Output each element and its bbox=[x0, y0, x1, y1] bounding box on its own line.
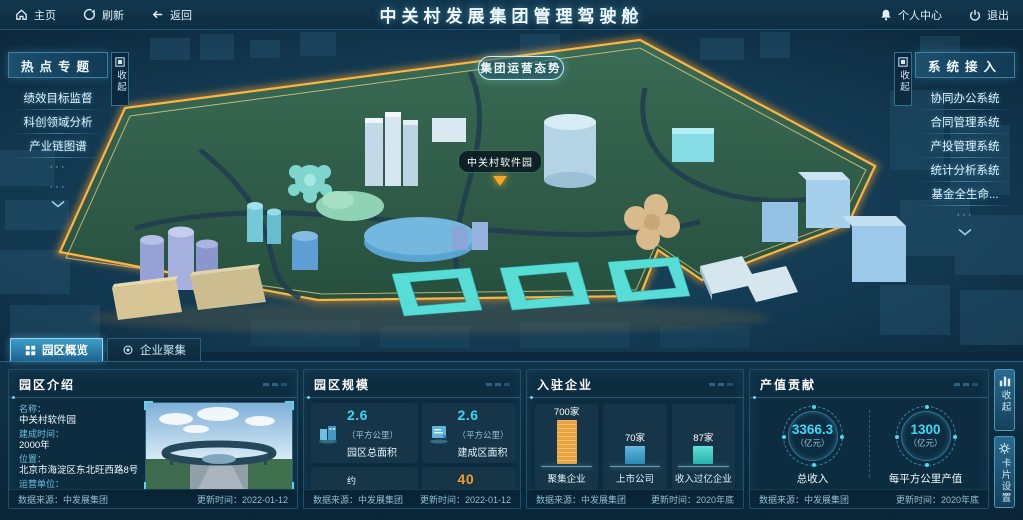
gauge-ring: 3366.3 （亿元） bbox=[783, 406, 843, 466]
hot-topics-collapse-button[interactable]: 收起 bbox=[111, 52, 129, 106]
corner-bracket bbox=[285, 401, 294, 410]
hot-topic-item[interactable]: 产业链图谱 bbox=[8, 134, 108, 158]
gauge-value: 1300 bbox=[910, 422, 940, 437]
collapse-cards-button[interactable]: 收起 bbox=[994, 369, 1015, 431]
corner-bracket bbox=[144, 482, 153, 490]
gauge-dot bbox=[953, 435, 957, 439]
field-label: 建成时间： bbox=[19, 429, 137, 440]
data-source: 数据来源：中发展集团 bbox=[536, 493, 626, 506]
field-value: 2000年 bbox=[19, 440, 137, 451]
bar-category-label: 聚集企业 bbox=[548, 471, 586, 485]
gauge-dot bbox=[895, 435, 899, 439]
collapse-label: 收起 bbox=[896, 70, 910, 93]
buildings-icon bbox=[317, 421, 341, 445]
more-items-indicator[interactable]: ··· bbox=[8, 178, 108, 198]
refresh-label: 刷新 bbox=[102, 7, 124, 23]
panel-enterprises: 入驻企业 700家 聚集企业 70家 上市公司 bbox=[526, 369, 744, 509]
enterprise-bar-chart: 700家 聚集企业 70家 上市公司 87家 bbox=[527, 398, 743, 489]
gauge-dot bbox=[925, 405, 929, 409]
grid-icon bbox=[25, 345, 36, 356]
system-item[interactable]: 协同办公系统 bbox=[915, 86, 1015, 110]
gauge-dot bbox=[925, 463, 929, 467]
chevron-down-icon[interactable] bbox=[50, 200, 66, 208]
collapse-label: 收起 bbox=[113, 70, 127, 93]
scene: 集团运营态势 中关村软件园 热点专题 收起 绩效目标监督 科创领域分析 产业链图… bbox=[0, 30, 1023, 352]
back-label: 返回 bbox=[170, 7, 192, 23]
system-access-collapse-button[interactable]: 收起 bbox=[894, 52, 912, 106]
card-settings-label: 卡片设置 bbox=[998, 458, 1012, 504]
stat-prefix: 约 bbox=[347, 476, 356, 486]
bar-column: 70家 上市公司 bbox=[603, 404, 666, 489]
personal-center-button[interactable]: 个人中心 bbox=[879, 7, 942, 23]
gauge-name: 每平方公里产值 bbox=[889, 471, 963, 486]
panel-park-intro: 园区介绍 名称：中关村软件园 建成时间：2000年 位置：北京市海淀区东北旺西路… bbox=[8, 369, 298, 509]
panel-title: 入驻企业 bbox=[537, 376, 593, 393]
dashboard-app: 中关村发展集团管理驾驶舱 主页 刷新 返回 个人中心 退出 bbox=[0, 0, 1023, 520]
tab-label: 企业聚集 bbox=[140, 342, 186, 358]
collapse-icon bbox=[898, 57, 908, 67]
system-item[interactable]: 统计分析系统 bbox=[915, 158, 1015, 182]
header-decoration bbox=[709, 383, 733, 386]
data-source: 数据来源：中发展集团 bbox=[18, 493, 108, 506]
home-label: 主页 bbox=[34, 7, 56, 23]
cards-row: 园区介绍 名称：中关村软件园 建成时间：2000年 位置：北京市海淀区东北旺西路… bbox=[0, 361, 1023, 520]
gauge-dot bbox=[840, 435, 844, 439]
target-icon bbox=[122, 344, 134, 356]
card-side-buttons: 收起 卡片设置 bbox=[994, 369, 1015, 520]
home-icon bbox=[14, 7, 29, 22]
field-label: 名称： bbox=[19, 404, 137, 415]
panel-title: 园区介绍 bbox=[19, 376, 75, 393]
system-item[interactable]: 合同管理系统 bbox=[915, 110, 1015, 134]
field-value: 中关村软件园 bbox=[19, 415, 137, 426]
bar-value-label: 700家 bbox=[554, 404, 579, 418]
update-time: 更新时间：2020年底 bbox=[896, 493, 979, 506]
map-marker[interactable]: 中关村软件园 bbox=[452, 150, 548, 186]
field-label: 运营单位： bbox=[19, 479, 137, 489]
bar-column: 700家 聚集企业 bbox=[535, 404, 598, 489]
map-pin-icon bbox=[493, 176, 507, 186]
home-button[interactable]: 主页 bbox=[14, 7, 56, 23]
park-photo-image bbox=[146, 403, 292, 489]
system-item[interactable]: 基金全生命... bbox=[915, 182, 1015, 206]
bar-over-100m-revenue bbox=[693, 446, 713, 464]
gauge-dot bbox=[812, 463, 816, 467]
gauge-total-revenue: 3366.3 （亿元） 总收入 bbox=[756, 406, 869, 486]
data-source: 数据来源：中发展集团 bbox=[759, 493, 849, 506]
gauge-value: 3366.3 bbox=[792, 422, 833, 437]
field-label: 位置： bbox=[19, 454, 137, 465]
stat-built-area: 2.6 （平方公里）建成区面积 bbox=[422, 403, 515, 463]
stat-name: 园区总面积 bbox=[347, 444, 412, 459]
topbar: 中关村发展集团管理驾驶舱 主页 刷新 返回 个人中心 退出 bbox=[0, 0, 1023, 30]
group-operation-label: 集团运营态势 bbox=[481, 60, 562, 76]
collapse-icon bbox=[115, 57, 125, 67]
update-time: 更新时间：2022-01-12 bbox=[420, 493, 511, 506]
panel-title: 园区规模 bbox=[314, 376, 370, 393]
stat-carrier-area: 约310(万平方米)载体面积 bbox=[311, 467, 418, 489]
bar-baseline bbox=[610, 466, 661, 467]
bar-baseline bbox=[541, 466, 592, 467]
panel-title: 产值贡献 bbox=[760, 376, 816, 393]
gauge-output-per-sqkm: 1300 （亿元） 每平方公里产值 bbox=[869, 406, 982, 486]
update-time: 更新时间：2022-01-12 bbox=[197, 493, 288, 506]
document-icon bbox=[428, 421, 452, 445]
bar-baseline bbox=[678, 466, 729, 467]
park-photo bbox=[145, 402, 293, 490]
system-item[interactable]: 产投管理系统 bbox=[915, 134, 1015, 158]
header-decoration bbox=[954, 383, 978, 386]
data-source: 数据来源：中发展集团 bbox=[313, 493, 403, 506]
exit-label: 退出 bbox=[987, 7, 1009, 23]
bar-listed-companies bbox=[625, 446, 645, 464]
header-decoration bbox=[263, 383, 287, 386]
stat-name: 建成区面积 bbox=[458, 444, 509, 459]
corner-bracket bbox=[285, 482, 294, 490]
back-arrow-icon bbox=[150, 7, 165, 22]
chevron-down-icon[interactable] bbox=[957, 228, 973, 236]
bell-icon bbox=[879, 8, 893, 22]
bar-column: 87家 收入过亿企业 bbox=[672, 404, 735, 489]
hot-topic-item[interactable]: 科创领域分析 bbox=[8, 110, 108, 134]
corner-bracket bbox=[144, 401, 153, 410]
stat-value: 2.6 bbox=[347, 407, 368, 423]
system-access-panel: 系统接入 收起 协同办公系统 合同管理系统 产投管理系统 统计分析系统 基金全生… bbox=[915, 52, 1015, 236]
exit-button[interactable]: 退出 bbox=[968, 7, 1009, 23]
bar-gathered-enterprises bbox=[557, 420, 577, 464]
personal-center-label: 个人中心 bbox=[898, 7, 942, 23]
map-marker-label: 中关村软件园 bbox=[458, 150, 542, 173]
bar-category-label: 收入过亿企业 bbox=[675, 471, 732, 485]
refresh-icon bbox=[82, 7, 97, 22]
back-button[interactable]: 返回 bbox=[150, 7, 192, 23]
bar-chart-icon bbox=[999, 375, 1011, 387]
gauge-ring: 1300 （亿元） bbox=[896, 406, 956, 466]
gauge-dot bbox=[782, 435, 786, 439]
gauge-name: 总收入 bbox=[797, 471, 829, 486]
update-time: 更新时间：2020年底 bbox=[651, 493, 734, 506]
card-settings-button[interactable]: 卡片设置 bbox=[994, 436, 1015, 508]
collapse-cards-label: 收起 bbox=[998, 390, 1012, 413]
refresh-button[interactable]: 刷新 bbox=[82, 7, 124, 23]
bar-value-label: 87家 bbox=[693, 430, 713, 444]
stat-unit: （平方公里） bbox=[458, 430, 509, 440]
stat-total-area: 2.6 （平方公里）园区总面积 bbox=[311, 403, 418, 463]
panel-output-value: 产值贡献 3366.3 （亿元） 总收入 bbox=[749, 369, 989, 509]
more-items-indicator[interactable]: ··· bbox=[8, 158, 108, 178]
bar-category-label: 上市公司 bbox=[616, 471, 654, 485]
gauge-unit: （亿元） bbox=[908, 437, 942, 449]
group-operation-button[interactable]: 集团运营态势 bbox=[478, 56, 564, 80]
hot-topic-item[interactable]: 绩效目标监督 bbox=[8, 86, 108, 110]
stat-value: 2.6 bbox=[458, 407, 479, 423]
tab-enterprise-cluster[interactable]: 企业聚集 bbox=[107, 338, 201, 361]
hot-topics-title: 热点专题 bbox=[8, 52, 108, 78]
field-value: 北京市海淀区东北旺西路8号 bbox=[19, 465, 137, 476]
gear-icon bbox=[998, 442, 1011, 455]
header-decoration bbox=[486, 383, 510, 386]
tab-label: 园区概览 bbox=[42, 342, 88, 358]
power-icon bbox=[968, 8, 982, 22]
bar-value-label: 70家 bbox=[625, 430, 645, 444]
stat-unit: （平方公里） bbox=[347, 430, 398, 440]
gauge-unit: （亿元） bbox=[795, 437, 829, 449]
more-items-indicator[interactable]: ··· bbox=[915, 206, 1015, 226]
system-access-title: 系统接入 bbox=[915, 52, 1015, 78]
tab-park-overview[interactable]: 园区概览 bbox=[10, 338, 103, 361]
hot-topics-panel: 热点专题 收起 绩效目标监督 科创领域分析 产业链图谱 ··· ··· bbox=[8, 52, 108, 208]
bottom-section: 园区概览 企业聚集 园区介绍 名称：中关村软件园 建成时间：2000年 位置：北… bbox=[0, 338, 1023, 520]
stat-self-owned-area: 40 （万平方米）自持面积 bbox=[422, 467, 515, 489]
gauge-dot bbox=[812, 405, 816, 409]
stat-value: 40 bbox=[458, 471, 475, 487]
bottom-tabs: 园区概览 企业聚集 bbox=[0, 338, 1023, 361]
panel-park-scale: 园区规模 2.6 （平方公里）园区总面积 2.6 （平方公里）建成区面积 约31… bbox=[303, 369, 521, 509]
